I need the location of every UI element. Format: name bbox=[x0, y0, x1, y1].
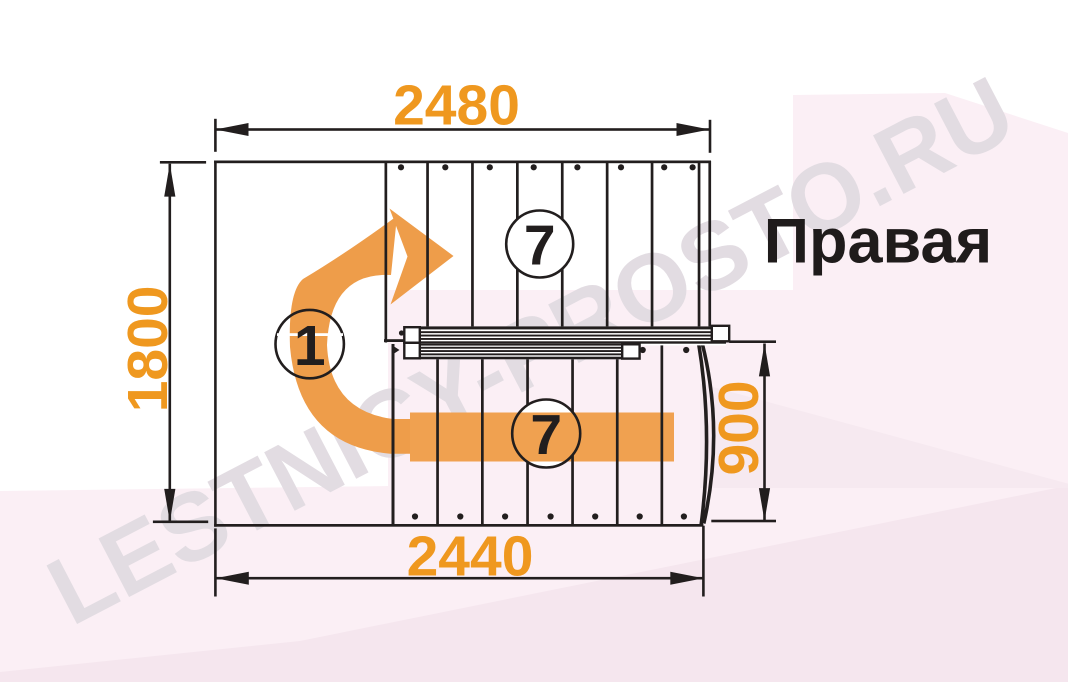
svg-text:7: 7 bbox=[524, 214, 556, 278]
svg-text:2480: 2480 bbox=[393, 74, 520, 138]
svg-text:2440: 2440 bbox=[407, 525, 534, 589]
svg-text:900: 900 bbox=[707, 380, 771, 475]
svg-text:1800: 1800 bbox=[116, 285, 180, 412]
svg-text:7: 7 bbox=[530, 403, 562, 467]
svg-text:Правая: Правая bbox=[764, 207, 993, 277]
svg-text:1: 1 bbox=[294, 314, 326, 378]
